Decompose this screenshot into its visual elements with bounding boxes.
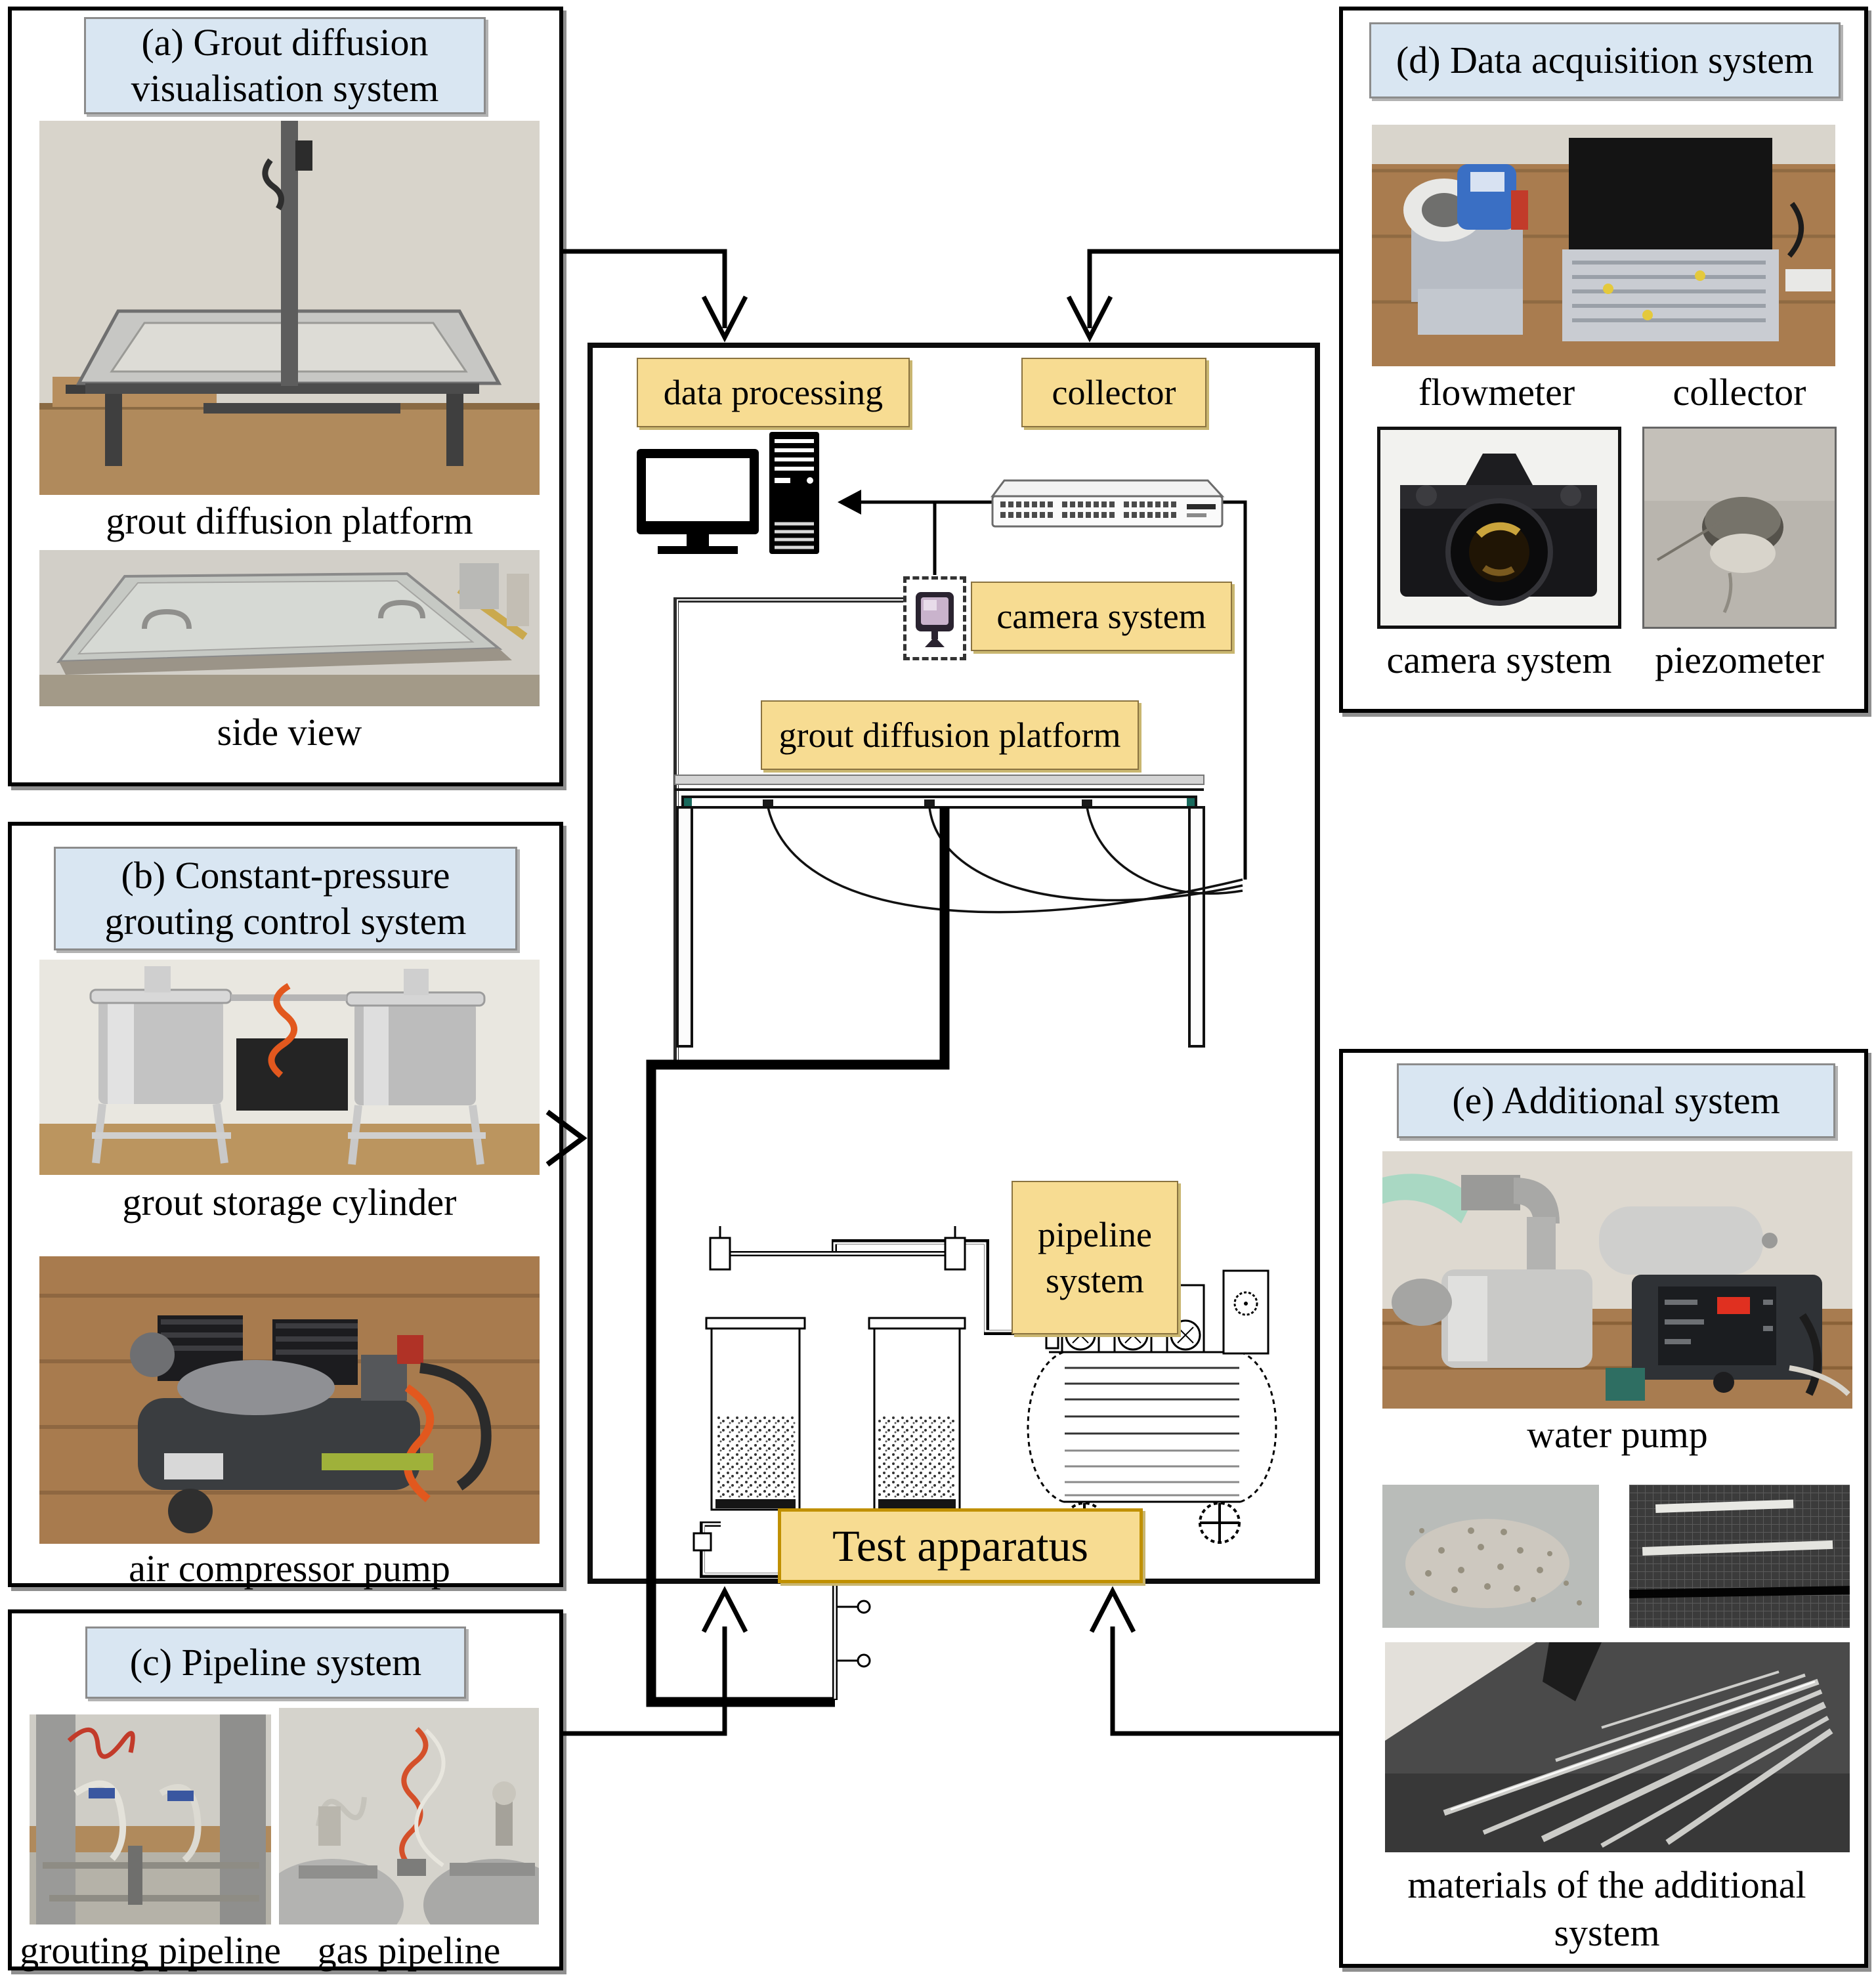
caption-grout-diffusion-platform: grout diffusion platform — [39, 499, 540, 543]
photo-side-view-art — [39, 550, 540, 706]
photo-grout-storage-cylinder — [39, 960, 540, 1175]
label-collector: collector — [1021, 358, 1206, 427]
switch-icon — [985, 467, 1227, 536]
photo-grouting-pipeline — [30, 1714, 271, 1924]
caption-materials-additional-system: materials of the additional system — [1372, 1861, 1842, 1957]
caption-materials-line1: materials of the additional — [1407, 1863, 1806, 1906]
label-pipeline-line2: system — [1046, 1258, 1144, 1304]
panel-b-title-line2: grouting control system — [105, 899, 467, 945]
label-data-processing: data processing — [637, 358, 910, 427]
panel-c-title-text: (c) Pipeline system — [130, 1640, 422, 1686]
photo-granule-material-art — [1382, 1485, 1599, 1628]
photo-camera-system — [1377, 427, 1621, 629]
photo-piezometer — [1642, 427, 1837, 629]
photo-flowmeter-collector-art — [1372, 125, 1835, 366]
caption-grout-storage-cylinder: grout storage cylinder — [39, 1180, 540, 1224]
label-grout-diffusion-platform: grout diffusion platform — [761, 700, 1139, 770]
caption-flowmeter: flowmeter — [1372, 370, 1621, 414]
caption-water-pump: water pump — [1382, 1413, 1852, 1456]
photo-strip-material-art — [1629, 1485, 1850, 1628]
photo-granule-material — [1382, 1485, 1599, 1628]
photo-water-pump — [1382, 1151, 1852, 1409]
panel-e-title-text: (e) Additional system — [1452, 1078, 1780, 1124]
label-test-apparatus: Test apparatus — [778, 1508, 1143, 1583]
photo-strip-material — [1629, 1485, 1850, 1628]
photo-acrylic-strips — [1385, 1642, 1850, 1852]
label-pipeline-line1: pipeline — [1038, 1212, 1152, 1258]
panel-a-title-line2: visualisation system — [131, 66, 439, 112]
caption-side-view: side view — [39, 710, 540, 754]
panel-c-title: (c) Pipeline system — [85, 1626, 466, 1699]
photo-camera-system-art — [1380, 430, 1618, 626]
caption-collector: collector — [1641, 370, 1838, 414]
arrow-panel-d-to-center — [1069, 251, 1339, 337]
caption-materials-line2: system — [1554, 1911, 1659, 1954]
label-pipeline-system: pipeline system — [1012, 1181, 1178, 1334]
panel-a-title: (a) Grout diffusion visualisation system — [84, 17, 486, 114]
panel-b-title-line1: (b) Constant-pressure — [121, 853, 450, 899]
panel-d-title-text: (d) Data acquisition system — [1396, 37, 1814, 83]
panel-d-title: (d) Data acquisition system — [1369, 22, 1841, 98]
caption-piezometer: piezometer — [1642, 638, 1837, 682]
caption-camera-system: camera system — [1377, 638, 1621, 682]
caption-air-compressor-pump: air compressor pump — [39, 1546, 540, 1590]
arrow-panel-a-to-center — [563, 251, 746, 337]
photo-gas-pipeline-art — [279, 1708, 539, 1924]
photo-air-compressor-pump — [39, 1256, 540, 1544]
caption-grouting-pipeline: grouting pipeline — [19, 1928, 282, 1972]
camera-dashed-box — [903, 576, 966, 660]
photo-flowmeter-collector — [1372, 125, 1835, 366]
photo-piezometer-art — [1644, 429, 1835, 627]
label-camera-system: camera system — [971, 582, 1232, 651]
photo-grout-diffusion-platform — [39, 121, 540, 495]
photo-grouting-pipeline-art — [30, 1714, 271, 1924]
photo-grout-storage-cylinder-art — [39, 960, 540, 1175]
photo-grout-diffusion-platform-art — [39, 121, 540, 495]
photo-gas-pipeline — [279, 1708, 539, 1924]
photo-side-view — [39, 550, 540, 706]
figure-canvas: (a) Grout diffusion visualisation system… — [0, 0, 1876, 1977]
arrow-panel-c-to-center — [563, 1591, 746, 1733]
panel-e-title: (e) Additional system — [1397, 1063, 1835, 1138]
arrow-panel-e-to-center — [1092, 1591, 1339, 1733]
camera-icon — [912, 587, 958, 650]
caption-gas-pipeline: gas pipeline — [278, 1928, 540, 1972]
photo-water-pump-art — [1382, 1151, 1852, 1409]
computer-icon — [631, 425, 828, 561]
photo-air-compressor-pump-art — [39, 1256, 540, 1544]
panel-b-title: (b) Constant-pressure grouting control s… — [54, 847, 517, 950]
photo-acrylic-strips-art — [1385, 1642, 1850, 1852]
panel-a-title-line1: (a) Grout diffusion — [141, 20, 428, 66]
